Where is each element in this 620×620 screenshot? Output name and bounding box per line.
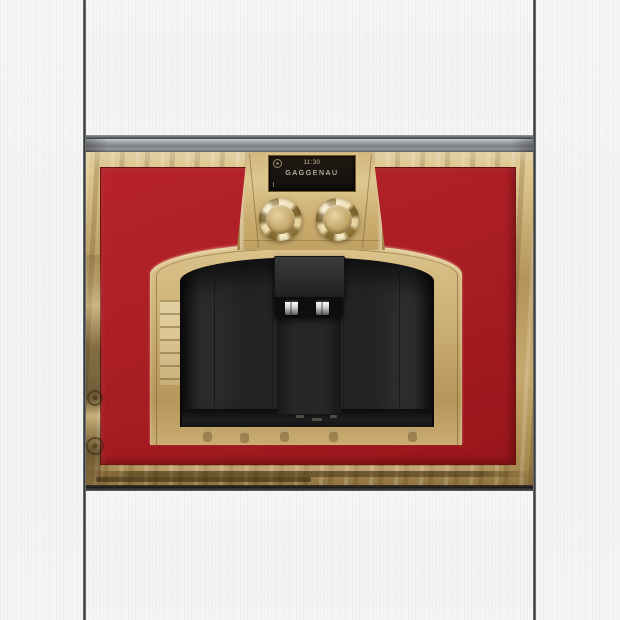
reflected-knob-ring-lower <box>86 437 104 455</box>
kitchen-scene: 11:30 GAGGENAU <box>0 0 620 620</box>
reflection-mark <box>280 429 289 442</box>
reflection-mark <box>408 429 417 442</box>
drip-grate-highlight <box>330 415 337 418</box>
drip-grate-highlight <box>312 418 322 421</box>
arch-reflection-left <box>160 300 180 385</box>
drip-grate-highlight <box>296 415 304 418</box>
bottom-door-seam <box>86 488 533 491</box>
left-control-knob[interactable] <box>259 198 302 241</box>
chamber-wall-edge-left <box>214 275 215 427</box>
reflected-rail <box>96 477 311 482</box>
display-screen[interactable]: 11:30 GAGGENAU <box>268 155 356 192</box>
dispenser-column <box>277 316 341 414</box>
cabinet-right-panel <box>536 0 620 620</box>
display-time: 11:30 <box>269 160 355 167</box>
cabinet-left-panel <box>0 0 83 620</box>
reflected-knob-ring-upper <box>87 390 103 406</box>
chamber-back-seam-left <box>272 263 273 427</box>
status-tick <box>273 182 274 187</box>
coffee-nozzle-left <box>285 300 298 315</box>
coffee-nozzle-right <box>316 300 329 315</box>
reflection-mark <box>329 429 338 442</box>
machine-top-trim <box>86 139 533 152</box>
chamber-wall-edge-right <box>399 275 400 427</box>
cabinet-top-door[interactable] <box>86 0 533 136</box>
dispenser-spout-unit <box>274 256 345 300</box>
display-brand-label: GAGGENAU <box>269 170 355 178</box>
panel-seam-right <box>533 0 536 620</box>
cabinet-bottom-door[interactable] <box>86 491 533 620</box>
right-control-knob[interactable] <box>316 198 359 241</box>
panel-engraving-bottom <box>243 240 379 241</box>
reflection-mark <box>203 429 212 442</box>
reflection-mark <box>240 430 249 443</box>
